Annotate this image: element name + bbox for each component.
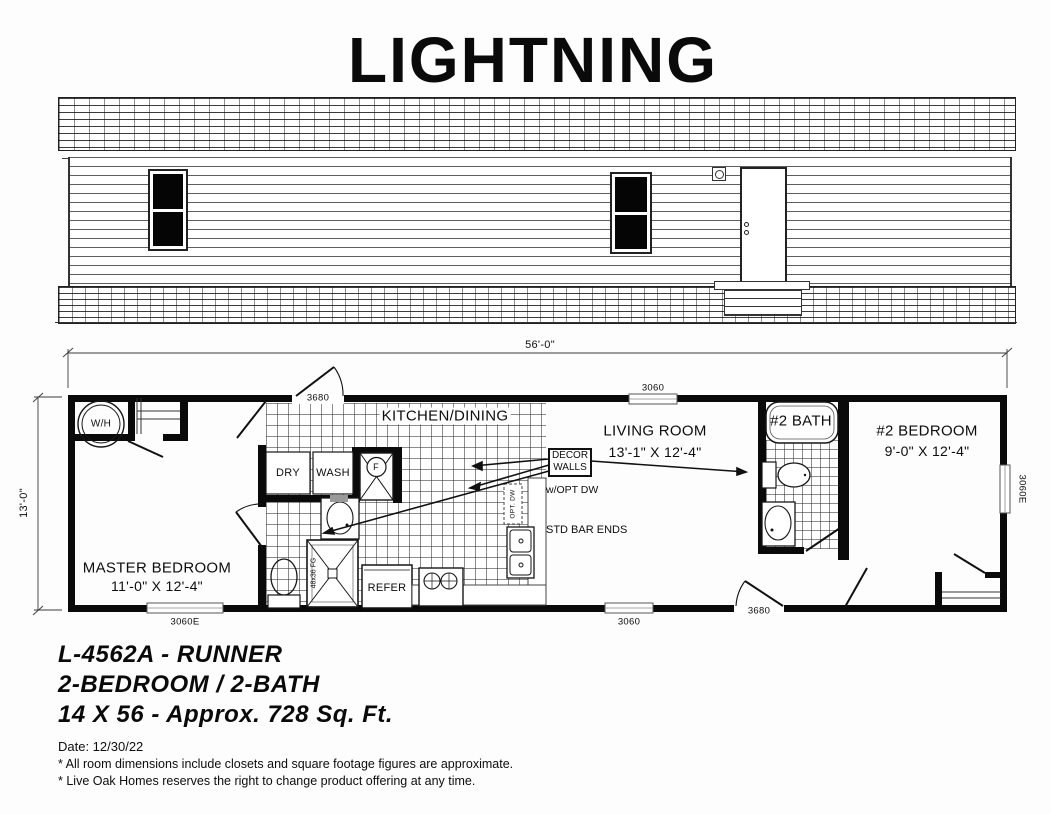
refrigerator-label: REFER: [368, 582, 407, 594]
furnace-label: F: [373, 462, 379, 472]
bath2-tile-floor: [766, 440, 838, 549]
master-bedroom-size: 11'-0" X 12'-4": [111, 578, 203, 594]
bedroom2-window-code: 3060E: [1017, 475, 1028, 504]
floorplan-sheet: LIGHTNING: [0, 0, 1051, 814]
kitchen-dining-label: KITCHEN/DINING: [380, 408, 511, 425]
front-door-code: 3680: [305, 393, 331, 404]
bedroom2-size: 9'-0" X 12'-4": [885, 443, 970, 459]
ground-line: [55, 322, 1017, 323]
elevation-window-left: [148, 169, 188, 251]
size-sqft: 14 X 56 - Approx. 728 Sq. Ft.: [58, 700, 513, 730]
door-knob-icon: [744, 230, 749, 235]
opt-dw-box-label: OPT. DW: [510, 489, 517, 518]
bath2-label: #2 BATH: [770, 413, 832, 430]
overall-width-dimension: 56'-0": [525, 339, 555, 351]
shower-size-label: 48x36 FG: [311, 558, 318, 589]
window-pane: [153, 212, 183, 247]
kitchen-tile-floor: [266, 403, 546, 605]
master-bedroom-label: MASTER BEDROOM: [83, 560, 231, 577]
date-line: Date: 12/30/22: [58, 739, 513, 754]
living-room-size: 13'-1" X 12'-4": [609, 444, 702, 460]
title-block: L-4562A - RUNNER 2-BEDROOM / 2-BATH 14 X…: [58, 640, 513, 788]
rear-door-code: 3680: [746, 606, 772, 617]
door-knob-icon: [744, 222, 749, 227]
overall-depth-dimension: 13'-0": [18, 488, 30, 518]
bedroom2-label: #2 BEDROOM: [876, 423, 977, 440]
washer-label: WASH: [316, 467, 350, 479]
model-number: L-4562A - RUNNER: [58, 640, 513, 670]
roof-shingles: [58, 97, 1016, 151]
disclaimer-1: * All room dimensions include closets an…: [58, 757, 513, 771]
elevation-door: [740, 167, 787, 283]
elevation-window-right: [610, 172, 652, 254]
window-pane: [615, 177, 647, 212]
siding-wall: [68, 157, 1012, 286]
window-pane: [615, 215, 647, 250]
water-heater-label: W/H: [91, 419, 111, 430]
bed-bath-config: 2-BEDROOM / 2-BATH: [58, 670, 513, 700]
skirting: [58, 286, 1016, 324]
door-step: [724, 290, 802, 316]
std-bar-ends-note: STD BAR ENDS: [546, 524, 627, 536]
bottom-window-code: 3060: [618, 617, 640, 628]
disclaimer-2: * Live Oak Homes reserves the right to c…: [58, 774, 513, 788]
decor-walls-callout: DECOR WALLS: [548, 448, 592, 477]
top-window-code: 3060: [642, 383, 664, 394]
porch-light-icon: [712, 167, 726, 181]
opt-dw-note: w/OPT DW: [546, 484, 598, 496]
page-title: LIGHTNING: [348, 23, 718, 97]
door-stoop: [714, 281, 810, 290]
master-window-code: 3060E: [171, 617, 200, 628]
window-pane: [153, 174, 183, 209]
dryer-label: DRY: [276, 467, 300, 479]
living-room-label: LIVING ROOM: [603, 423, 706, 440]
